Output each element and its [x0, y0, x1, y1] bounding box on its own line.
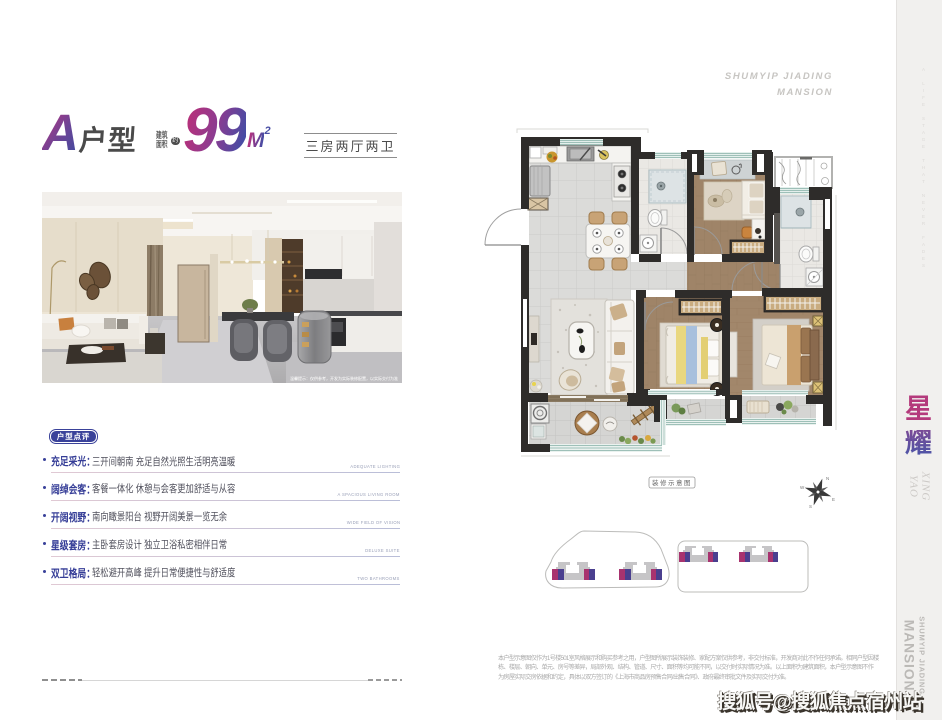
svg-text:S: S — [809, 504, 812, 509]
svg-text:装修示意图: 装修示意图 — [652, 478, 692, 487]
svg-text:W: W — [800, 485, 805, 490]
svg-text:温馨提示：仅供参考，开发为实际装修配置，以实际交付为准: 温馨提示：仅供参考，开发为实际装修配置，以实际交付为准 — [290, 375, 398, 381]
svg-text:N: N — [826, 476, 829, 481]
svg-text:E: E — [832, 497, 835, 502]
